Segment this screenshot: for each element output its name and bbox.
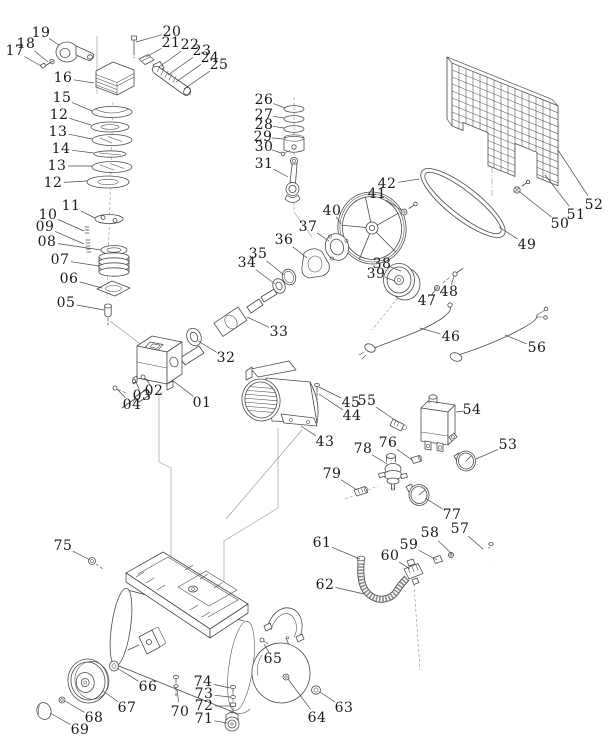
leader-line-14 [72, 150, 94, 153]
leader-line-08 [58, 244, 101, 250]
part-label-33: 33 [270, 325, 289, 339]
leader-line-71 [214, 721, 227, 723]
part-label-47: 47 [418, 294, 437, 308]
leader-line-41 [386, 200, 401, 210]
leader-line-44 [319, 394, 343, 410]
part-label-71: 71 [195, 712, 214, 726]
part-label-19: 19 [32, 26, 51, 40]
part-label-21: 21 [162, 36, 181, 50]
leader-line-52 [558, 150, 588, 196]
leader-line-60 [399, 562, 410, 569]
part-label-32: 32 [217, 351, 236, 365]
leader-line-59 [419, 550, 437, 560]
leader-line-18 [35, 51, 49, 62]
leader-line-35 [267, 261, 284, 275]
part-label-46: 46 [442, 330, 461, 344]
leader-line-46 [420, 328, 440, 334]
leader-line-13 [69, 134, 92, 139]
part-label-26: 26 [255, 93, 274, 107]
part-label-42: 42 [378, 177, 397, 191]
leader-line-67 [103, 691, 118, 702]
part-label-43: 43 [316, 435, 335, 449]
leader-line-62 [336, 588, 364, 595]
part-label-74: 74 [194, 675, 213, 689]
leader-line-74 [214, 684, 230, 688]
part-label-56: 56 [528, 341, 547, 355]
leader-line-20 [136, 35, 161, 42]
part-label-40: 40 [323, 204, 342, 218]
leader-line-26 [273, 104, 285, 108]
part-label-75: 75 [54, 539, 73, 553]
part-label-36: 36 [275, 233, 294, 247]
part-label-39: 39 [367, 267, 386, 281]
leader-line-39 [385, 277, 395, 281]
leader-line-75 [73, 551, 90, 560]
leader-line-12 [64, 181, 87, 182]
leader-line-57 [468, 536, 483, 549]
part-label-15: 15 [53, 91, 72, 105]
part-label-76: 76 [379, 436, 398, 450]
part-label-05: 05 [57, 296, 76, 310]
part-label-12: 12 [44, 176, 63, 190]
leader-line-22 [159, 51, 181, 67]
part-label-64: 64 [308, 711, 327, 725]
leader-line-49 [499, 227, 518, 239]
leader-line-07 [71, 262, 99, 266]
part-label-37: 37 [299, 220, 318, 234]
part-label-53: 53 [499, 438, 518, 452]
leader-line-34 [256, 270, 275, 284]
part-label-30: 30 [255, 140, 274, 154]
part-label-51: 51 [567, 208, 586, 222]
leader-line-64 [288, 679, 310, 709]
leader-line-43 [301, 426, 316, 436]
leader-line-38 [391, 267, 401, 271]
leader-line-73 [215, 695, 230, 697]
leader-line-37 [317, 233, 329, 241]
leader-line-50 [520, 192, 551, 217]
leader-line-56 [505, 335, 527, 344]
part-label-79: 79 [323, 467, 342, 481]
diagram-stage: 0102030405060708091011121314131215161718… [0, 0, 615, 755]
part-label-58: 58 [421, 526, 440, 540]
part-label-66: 66 [139, 680, 158, 694]
leader-line-77 [425, 498, 443, 509]
leader-line-10 [58, 220, 84, 232]
leader-line-19 [49, 38, 59, 45]
leader-line-27 [273, 116, 284, 118]
leader-line-16 [74, 80, 94, 83]
leader-line-70 [177, 690, 179, 702]
part-label-31: 31 [255, 157, 274, 171]
leader-line-61 [332, 547, 360, 559]
part-label-14: 14 [52, 142, 71, 156]
leader-line-28 [273, 126, 284, 128]
leader-line-53 [476, 449, 498, 459]
leader-line-29 [272, 138, 283, 139]
leader-line-55 [376, 407, 398, 422]
part-label-04: 04 [123, 398, 142, 412]
part-label-08: 08 [38, 235, 57, 249]
leader-line-63 [320, 692, 335, 702]
part-label-13: 13 [48, 159, 67, 173]
leader-line-76 [397, 449, 412, 460]
leader-line-68 [65, 701, 85, 712]
leader-line-31 [274, 169, 288, 177]
part-label-54: 54 [463, 403, 482, 417]
part-label-01: 01 [193, 396, 212, 410]
part-label-13: 13 [49, 125, 68, 139]
part-label-57: 57 [451, 522, 470, 536]
leader-line-21 [146, 48, 161, 57]
leader-line-11 [81, 211, 95, 218]
part-label-60: 60 [381, 549, 400, 563]
part-label-11: 11 [62, 199, 81, 213]
leader-line-66 [117, 668, 139, 681]
part-label-07: 07 [51, 253, 70, 267]
part-label-16: 16 [54, 71, 73, 85]
part-label-52: 52 [585, 198, 604, 212]
part-label-70: 70 [171, 705, 190, 719]
leader-line-12 [70, 118, 92, 125]
leader-lines-layer [0, 0, 615, 755]
part-label-55: 55 [358, 394, 377, 408]
part-label-35: 35 [249, 247, 268, 261]
part-label-77: 77 [443, 508, 462, 522]
part-label-12: 12 [50, 108, 69, 122]
part-label-25: 25 [210, 58, 229, 72]
part-label-61: 61 [313, 536, 332, 550]
part-label-49: 49 [518, 238, 537, 252]
part-label-78: 78 [354, 442, 373, 456]
leader-line-42 [398, 179, 419, 182]
leader-line-58 [438, 541, 452, 554]
part-label-10: 10 [39, 208, 58, 222]
leader-line-33 [247, 317, 269, 327]
part-label-06: 06 [60, 272, 79, 286]
leader-line-32 [198, 341, 217, 352]
part-label-65: 65 [264, 652, 283, 666]
leader-line-36 [293, 247, 307, 258]
leader-line-09 [55, 231, 84, 244]
part-label-69: 69 [71, 723, 90, 737]
part-label-48: 48 [440, 285, 459, 299]
leader-line-79 [341, 480, 357, 490]
part-label-62: 62 [316, 578, 335, 592]
leader-line-01 [172, 380, 193, 396]
part-label-63: 63 [335, 701, 354, 715]
part-label-59: 59 [400, 538, 419, 552]
leader-line-69 [50, 713, 70, 725]
leader-line-17 [25, 57, 42, 67]
part-label-67: 67 [118, 701, 137, 715]
leader-line-06 [80, 282, 102, 288]
leader-line-05 [77, 305, 104, 310]
leader-line-51 [545, 175, 569, 206]
leader-line-15 [72, 102, 92, 111]
leader-line-78 [372, 455, 387, 464]
part-label-44: 44 [343, 409, 362, 423]
